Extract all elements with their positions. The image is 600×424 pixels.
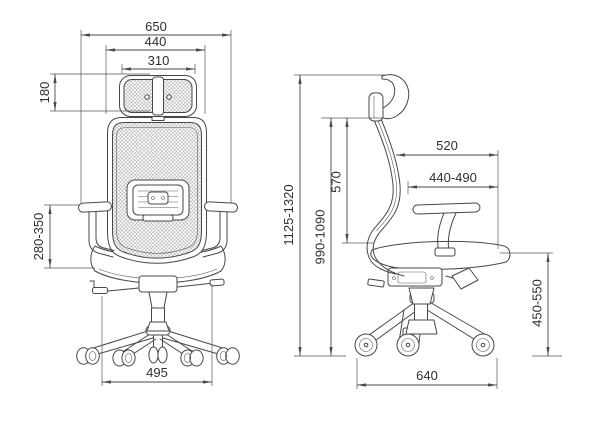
caster [113,350,135,366]
dim-label-overall-width: 650 [145,19,167,34]
underseat-mechanism-front [90,276,224,294]
dim-seat-total-depth: 520 [396,138,498,249]
drawing-sheet: 650 440 310 180 280-350 [0,0,600,424]
caster [77,348,100,364]
dim-label-headrest-height: 180 [37,82,52,104]
dim-label-base-depth: 640 [416,368,438,383]
headrest-front [120,76,197,121]
side-dimensions: 1125-1320 990-1090 570 520 440-490 [281,75,562,389]
dim-label-seat-depth: 440-490 [429,170,477,185]
front-chair [77,76,240,367]
dim-seat-height: 450-550 [500,253,562,356]
caster [149,347,167,363]
caster [355,334,377,356]
technical-drawing: 650 440 310 180 280-350 [0,0,600,424]
caster [472,334,494,356]
casters-front [77,347,240,366]
tilt-paddle [452,268,478,289]
dim-label-headrest-width: 310 [148,53,170,68]
dim-headrest-width: 310 [122,53,195,74]
dim-label-seat-total-depth: 520 [436,138,458,153]
caster [181,350,203,366]
dim-label-backrest-top-height: 990-1090 [313,210,328,265]
side-chair [355,75,510,356]
dim-backrest-height: 570 [329,118,375,243]
caster [217,348,240,364]
underseat-mechanism-side [368,268,478,289]
gas-lift-side [406,288,437,334]
dim-label-seat-height: 450-550 [530,279,545,327]
side-lever [368,279,385,287]
dim-label-armrest-height: 280-350 [31,213,46,261]
left-lever [93,288,108,294]
lumbar-adjuster [127,180,189,221]
headrest-side [369,75,409,121]
gas-lift-front [147,292,169,331]
dim-label-base-width: 495 [146,365,168,380]
dim-base-depth: 640 [357,358,497,389]
side-view: 1125-1320 990-1090 570 520 440-490 [281,75,562,389]
dim-armrest-height: 280-350 [31,205,95,268]
front-view: 650 440 310 180 280-350 [31,19,239,386]
dim-label-backrest-height: 570 [329,171,344,193]
dim-label-overall-height: 1125-1320 [281,184,296,245]
dim-seat-depth: 440-490 [408,170,498,194]
dim-label-backrest-width: 440 [145,34,167,49]
